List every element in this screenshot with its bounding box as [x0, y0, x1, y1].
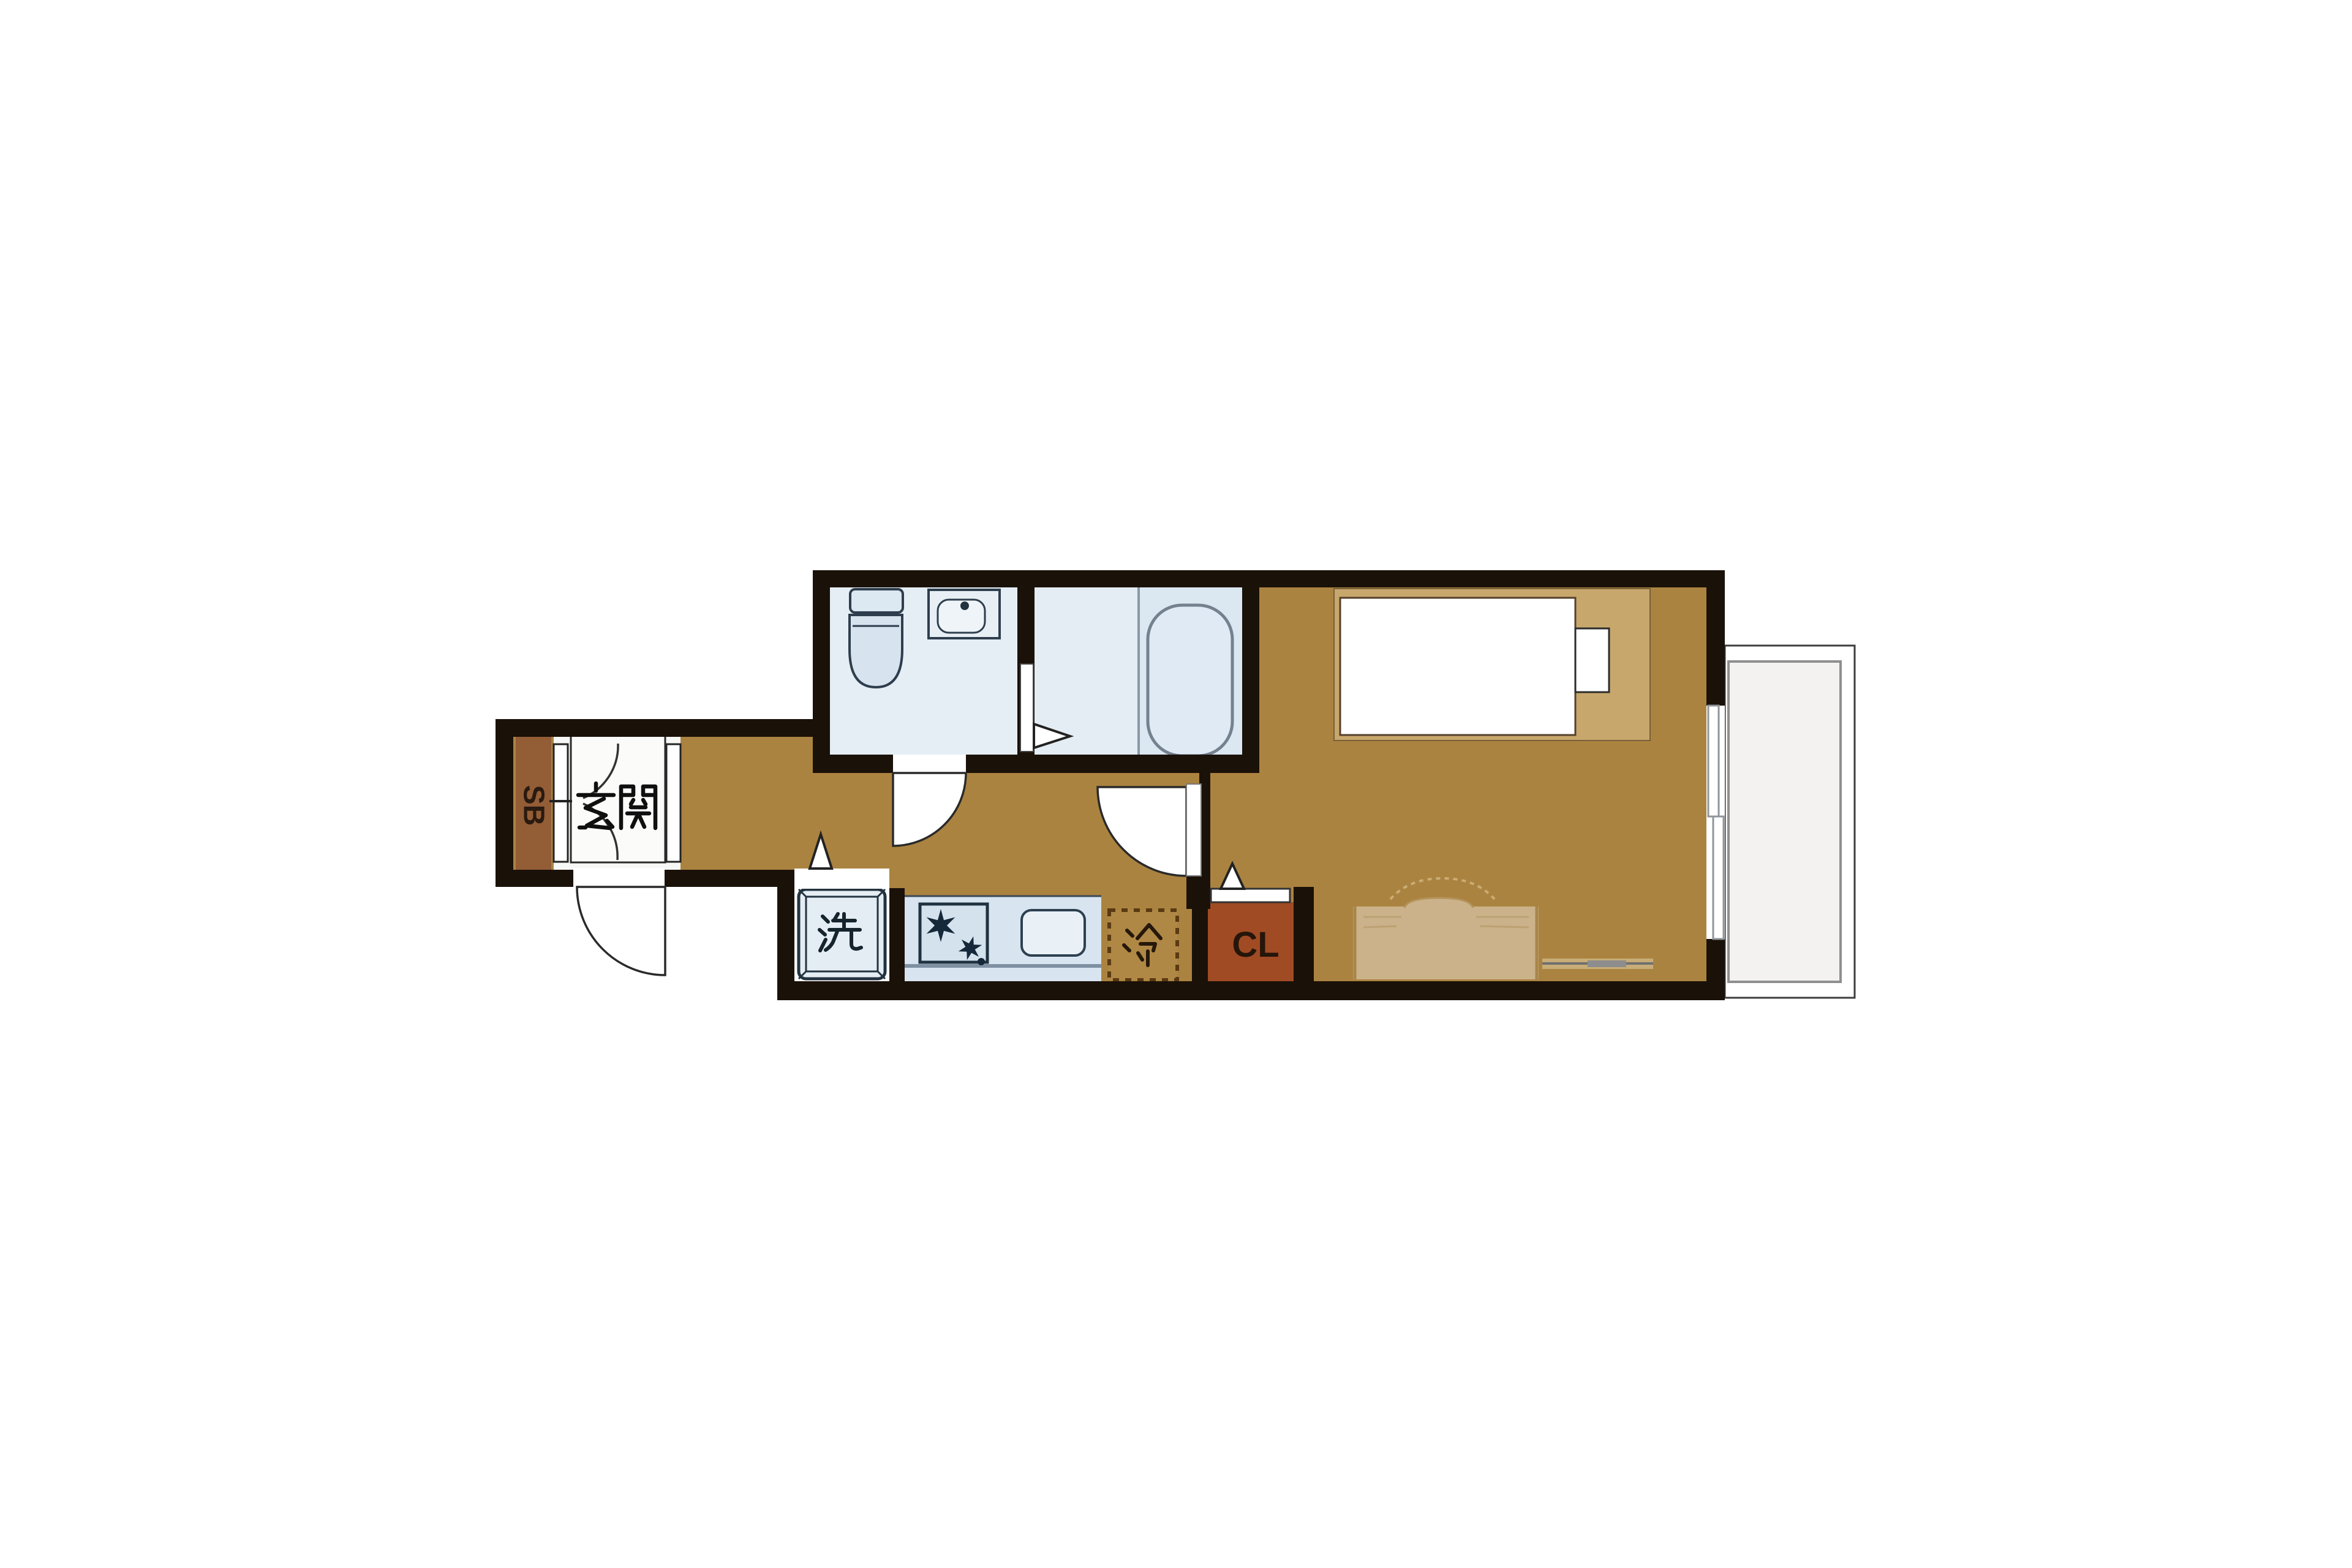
- svg-text:SB: SB: [518, 785, 550, 826]
- svg-text:CL: CL: [1232, 925, 1279, 965]
